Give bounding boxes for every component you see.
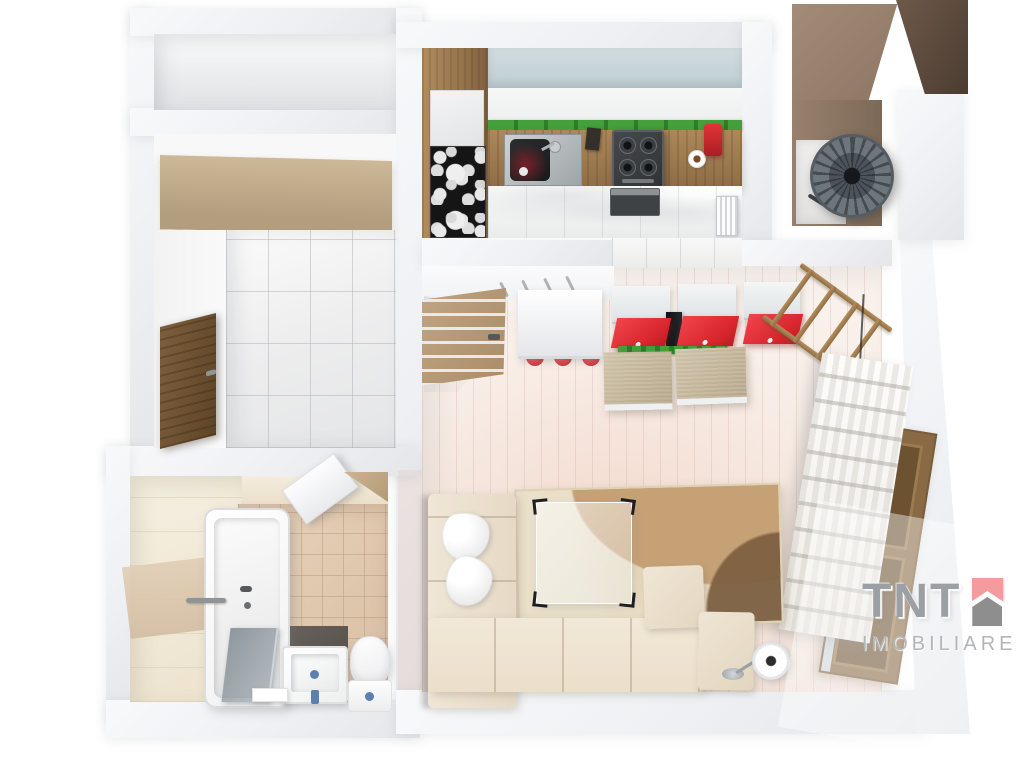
hob-burner: [640, 159, 657, 176]
glass-coffee-table: [536, 502, 632, 604]
bathtub-drain: [244, 602, 251, 609]
sink-drain: [519, 167, 528, 176]
kitchen-sink-basin: [510, 139, 550, 181]
wall-left-upper: [130, 8, 154, 460]
living-open-door: [422, 288, 506, 386]
ottoman: [603, 351, 672, 410]
brand-name: TNT: [862, 578, 961, 626]
washbasin: [282, 646, 348, 704]
wall-hall-bath-divider: [106, 446, 420, 476]
kitchen-white-panel: [430, 90, 484, 146]
toilet: [348, 636, 390, 712]
watermark-logo: TNT IMOBILIARE: [862, 578, 1016, 656]
kitchen-passthrough-floor: [612, 238, 742, 268]
sofa-chaise: [643, 565, 705, 629]
wardrobe-top: [160, 155, 392, 240]
toilet-flush-button: [365, 692, 374, 701]
bathtub-faucet: [240, 586, 252, 592]
hallway: [154, 134, 396, 448]
kitchen-back-wall: [488, 88, 742, 120]
kitchen-sink-unit: [504, 134, 582, 186]
tv-cabinet-red-front: [677, 316, 739, 346]
gas-hob: [612, 130, 664, 190]
knife-block: [585, 127, 601, 150]
white-desk: [518, 290, 602, 359]
toilet-lid: [350, 636, 390, 686]
wall-niche-top: [130, 8, 420, 36]
hob-controls: [622, 179, 654, 183]
kitchen: [422, 48, 742, 238]
wall-tint: [398, 470, 422, 690]
kitchen-radiator: [716, 196, 738, 236]
entrance-door: [160, 313, 216, 449]
house-icon: [967, 578, 1005, 630]
hinge: [702, 340, 708, 345]
hob-burner: [619, 137, 636, 154]
red-coffee-machine: [704, 124, 722, 156]
bathroom: [130, 476, 388, 702]
standing-fan: [810, 134, 894, 218]
wall-kitchen-right: [742, 22, 772, 264]
oven: [610, 188, 660, 216]
storage-niche: [154, 34, 396, 110]
table-leg: [619, 498, 636, 515]
towel-rail: [186, 598, 226, 603]
balcony-upper-wedge: [792, 4, 904, 102]
wall-living-top-left: [422, 240, 614, 266]
living-door-handle: [488, 334, 500, 340]
balcony-corner-wall: [896, 0, 968, 94]
washbasin-faucet: [311, 690, 319, 704]
hob-burner: [640, 137, 657, 154]
wall-kitchen-top: [396, 22, 772, 48]
wall-balcony-right: [898, 90, 964, 240]
art-print-fridge-panel: [430, 146, 486, 238]
hallway-tile-floor: [226, 230, 396, 448]
ottoman: [675, 347, 747, 405]
floor-lamp-shade: [752, 642, 790, 680]
shelf-shadow: [565, 276, 575, 292]
washbasin-shelf: [252, 688, 288, 702]
table-leg: [532, 498, 548, 514]
corner-sofa-bottom: [428, 618, 704, 692]
wall-niche-hall-divider: [130, 108, 420, 136]
washbasin-drain: [310, 670, 319, 679]
table-leg: [532, 591, 548, 607]
table-leg: [619, 591, 635, 607]
hob-burner: [619, 159, 636, 176]
brand-subtitle: IMOBILIARE: [862, 633, 1016, 656]
tv-cabinet-red-front: [611, 318, 671, 348]
floor-plan-scene: TNT IMOBILIARE: [0, 0, 1024, 768]
frosted-window-strip: [488, 48, 742, 88]
entrance-door-handle: [206, 369, 216, 376]
